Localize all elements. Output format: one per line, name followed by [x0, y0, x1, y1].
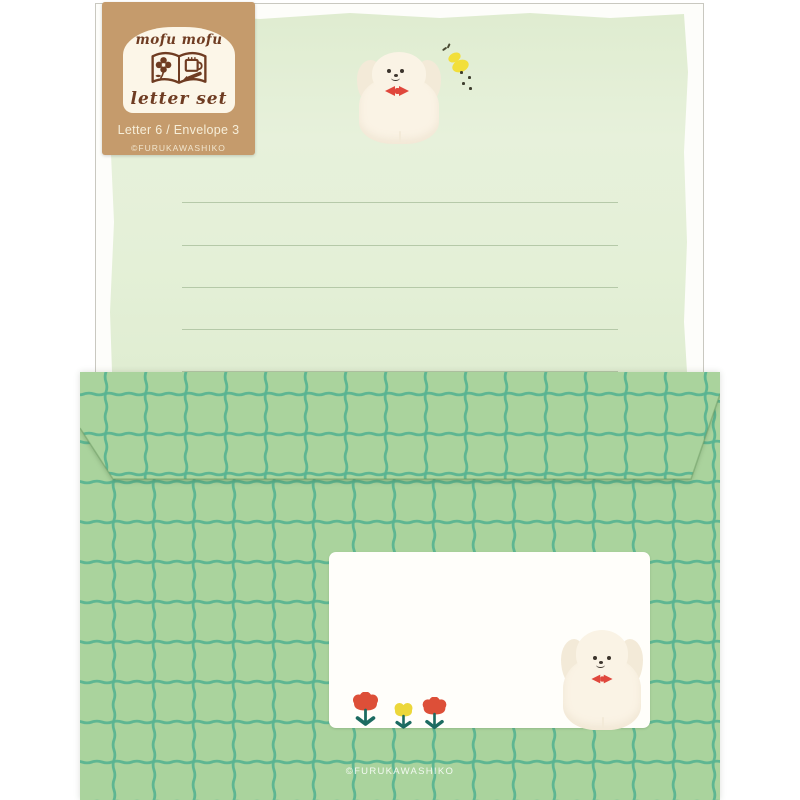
envelope-copyright-text: ©FURUKAWASHIKO [80, 766, 720, 777]
dog-eye [607, 656, 611, 660]
tag-contents-text: Letter 6 / Envelope 3 [102, 123, 255, 137]
dog-eye [593, 656, 597, 660]
trail-dot [468, 76, 471, 79]
tulip-yellow-icon [393, 702, 414, 732]
flap-grid-pattern [80, 372, 720, 484]
rule-line [182, 287, 618, 288]
letter-paper-dog-icon [358, 52, 440, 144]
dog-head [576, 630, 629, 677]
letter-set-product-photo: mofu mofu letter set Letter 6 / Envelope [0, 0, 800, 800]
trail-dot [462, 82, 465, 85]
envelope-dog-icon [562, 630, 642, 730]
envelope-flap [80, 372, 720, 486]
brand-text: mofu mofu [135, 32, 222, 48]
dog-mouth [596, 662, 605, 668]
trail-dot [460, 71, 463, 74]
envelope: ©FURUKAWASHIKO [80, 372, 720, 800]
tag-stamp-panel: mofu mofu letter set [123, 27, 235, 113]
bow-knot [600, 676, 604, 681]
rule-line [182, 245, 618, 246]
dog-paw-line [602, 717, 604, 728]
kraft-tag: mofu mofu letter set Letter 6 / Envelope [102, 2, 255, 155]
bow-tie-icon [591, 675, 612, 684]
rule-line [182, 202, 618, 203]
butterfly-antenna [447, 43, 451, 48]
tag-emblem-icon [149, 48, 209, 90]
tag-copyright-text: ©FURUKAWASHIKO [102, 143, 255, 153]
butterfly-icon [440, 44, 476, 92]
trail-dot [469, 87, 472, 90]
dog-paw-line [399, 131, 401, 142]
tulip-red-icon [421, 697, 448, 733]
envelope-flap-face [80, 372, 720, 484]
bow-tie-icon [385, 86, 409, 96]
rule-line [182, 329, 618, 330]
product-title-text: letter set [131, 89, 228, 109]
dog-mouth [391, 75, 400, 81]
dog-eye [400, 69, 404, 73]
dog-eye [387, 69, 391, 73]
tulip-red-icon [352, 692, 379, 730]
bow-knot [395, 88, 400, 94]
